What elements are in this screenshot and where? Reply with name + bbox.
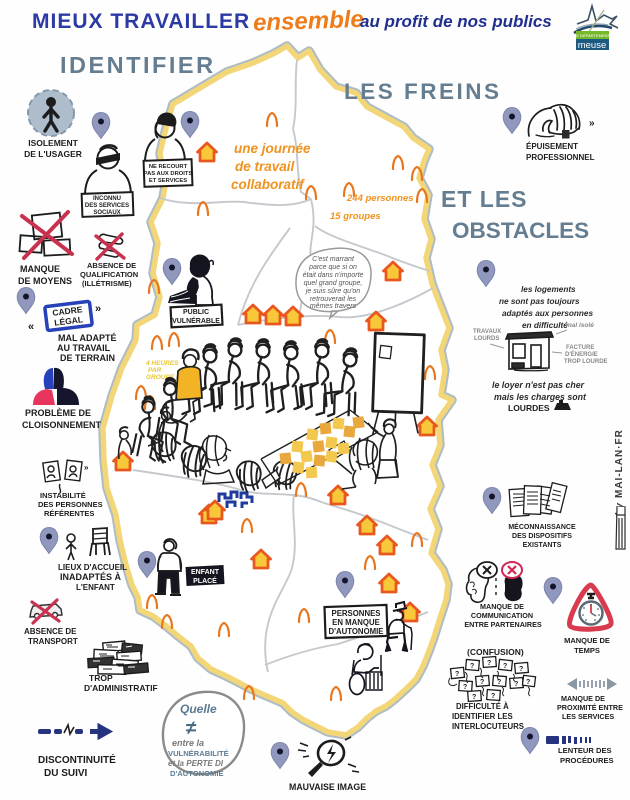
svg-text:CLOISONNEMENT: CLOISONNEMENT bbox=[22, 420, 102, 430]
svg-text:le loyer n'est pas cher: le loyer n'est pas cher bbox=[492, 380, 585, 390]
svg-text:(CONFUSION): (CONFUSION) bbox=[467, 647, 524, 657]
svg-text:et la PERTE DI: et la PERTE DI bbox=[168, 759, 224, 768]
svg-text:FACTURE: FACTURE bbox=[566, 345, 594, 351]
svg-text:«: « bbox=[28, 321, 34, 333]
svg-text:LIEUX D'ACCUEIL: LIEUX D'ACCUEIL bbox=[58, 563, 127, 572]
svg-text:collaboratif: collaboratif bbox=[231, 177, 305, 192]
svg-text:DE L'USAGER: DE L'USAGER bbox=[24, 149, 82, 159]
svg-text:MAL ADAPTÉ: MAL ADAPTÉ bbox=[58, 333, 117, 343]
svg-text:entre la: entre la bbox=[172, 738, 204, 748]
svg-text:MAUVAISE IMAGE: MAUVAISE IMAGE bbox=[289, 782, 366, 792]
svg-text:meuse: meuse bbox=[578, 40, 607, 51]
svg-text:D'AUTONOMIE: D'AUTONOMIE bbox=[329, 627, 384, 636]
svg-text:PAR: PAR bbox=[148, 367, 162, 374]
svg-text:LES FREINS: LES FREINS bbox=[344, 79, 502, 104]
svg-text:MANQUE: MANQUE bbox=[20, 264, 60, 274]
svg-text:NE RECOURT: NE RECOURT bbox=[149, 164, 188, 170]
svg-text:MANQUE DE: MANQUE DE bbox=[561, 694, 605, 703]
svg-text:INCONNU: INCONNU bbox=[93, 196, 121, 202]
svg-text:DE TERRAIN: DE TERRAIN bbox=[60, 353, 115, 363]
svg-text:MANQUE DE: MANQUE DE bbox=[564, 636, 610, 645]
svg-text:D'ÉNERGIE: D'ÉNERGIE bbox=[565, 350, 598, 358]
svg-text:IDENTIFIER: IDENTIFIER bbox=[60, 52, 216, 78]
svg-text:TROP LOURDE: TROP LOURDE bbox=[564, 359, 608, 365]
svg-text:244 personnes: 244 personnes bbox=[346, 193, 414, 204]
svg-text:D'ADMINISTRATIF: D'ADMINISTRATIF bbox=[84, 683, 158, 693]
svg-text:MÉCONNAISSANCE: MÉCONNAISSANCE bbox=[508, 522, 576, 531]
svg-text:DE MOYENS: DE MOYENS bbox=[18, 276, 72, 286]
svg-text:?: ? bbox=[519, 666, 523, 673]
svg-text:LENTEUR DES: LENTEUR DES bbox=[558, 746, 612, 755]
svg-text:MIEUX TRAVAILLER: MIEUX TRAVAILLER bbox=[32, 10, 250, 33]
svg-text:L'ENFANT: L'ENFANT bbox=[76, 583, 115, 592]
svg-text:LOURDES: LOURDES bbox=[508, 403, 550, 413]
svg-text:15 groupes: 15 groupes bbox=[330, 211, 381, 222]
svg-text:?: ? bbox=[487, 660, 491, 667]
svg-text:OBSTACLES: OBSTACLES bbox=[452, 218, 589, 243]
svg-text:?: ? bbox=[503, 663, 507, 670]
svg-text:ÉPUISEMENT: ÉPUISEMENT bbox=[526, 142, 578, 151]
svg-text:ISOLEMENT: ISOLEMENT bbox=[28, 138, 78, 148]
svg-text:en difficulté: en difficulté bbox=[522, 321, 568, 330]
svg-text:TROP: TROP bbox=[89, 673, 113, 683]
svg-text:PROFESSIONNEL: PROFESSIONNEL bbox=[526, 153, 595, 162]
svg-text:?: ? bbox=[470, 663, 474, 670]
svg-text:4 HEURES: 4 HEURES bbox=[145, 360, 179, 367]
svg-text:TRANSPORT: TRANSPORT bbox=[28, 637, 78, 646]
svg-text:?: ? bbox=[497, 679, 501, 686]
svg-text:ENFANT: ENFANT bbox=[191, 569, 220, 576]
svg-text:MANQUE DE: MANQUE DE bbox=[480, 602, 524, 611]
svg-text:?: ? bbox=[514, 681, 518, 688]
svg-text:ensemble: ensemble bbox=[253, 6, 365, 37]
svg-text:ENTRE PARTENAIRES: ENTRE PARTENAIRES bbox=[464, 620, 542, 629]
svg-text:PROXIMITÉ ENTRE: PROXIMITÉ ENTRE bbox=[557, 703, 623, 712]
svg-text:DES PERSONNES: DES PERSONNES bbox=[38, 500, 103, 509]
svg-text:PROCÉDURES: PROCÉDURES bbox=[560, 756, 614, 765]
svg-text:INSTABILITÉ: INSTABILITÉ bbox=[40, 491, 86, 500]
svg-text:?: ? bbox=[463, 684, 467, 691]
svg-text:≠: ≠ bbox=[186, 718, 197, 739]
svg-text:PERSONNES: PERSONNES bbox=[332, 609, 381, 618]
svg-text:était dans n'importe: était dans n'importe bbox=[303, 272, 364, 279]
svg-text:MAI-LAN·FR: MAI-LAN·FR bbox=[614, 429, 625, 498]
svg-text:C'est marrant: C'est marrant bbox=[312, 256, 355, 263]
svg-text:SOCIAUX: SOCIAUX bbox=[93, 210, 120, 216]
svg-text:au profit de nos publics: au profit de nos publics bbox=[360, 12, 552, 31]
svg-text:ABSENCE DE: ABSENCE DE bbox=[24, 627, 77, 636]
svg-text:LOURDS: LOURDS bbox=[474, 336, 499, 342]
svg-text:D'AUTONOMIE: D'AUTONOMIE bbox=[170, 769, 224, 778]
svg-text:quel grand groupe,: quel grand groupe, bbox=[304, 280, 363, 287]
svg-text:DES SERVICES: DES SERVICES bbox=[85, 203, 129, 209]
svg-text:DU SUIVI: DU SUIVI bbox=[44, 768, 88, 779]
svg-text:LE DÉPARTEMENT: LE DÉPARTEMENT bbox=[574, 33, 610, 38]
svg-text:ET LES: ET LES bbox=[441, 186, 528, 212]
svg-text:LES SERVICES: LES SERVICES bbox=[562, 712, 614, 721]
svg-text:»: » bbox=[84, 463, 89, 472]
svg-text:?: ? bbox=[472, 694, 476, 701]
svg-text:ET SERVICES: ET SERVICES bbox=[149, 178, 187, 184]
svg-text:DIFFICULTÉ À: DIFFICULTÉ À bbox=[456, 702, 509, 711]
svg-text:QUALIFICATION: QUALIFICATION bbox=[80, 270, 138, 279]
svg-text:PROBLÈME DE: PROBLÈME DE bbox=[25, 408, 91, 418]
svg-text:?: ? bbox=[455, 671, 459, 678]
svg-text:EN MANQUE: EN MANQUE bbox=[332, 618, 380, 627]
svg-text:PAS AUX DROITS: PAS AUX DROITS bbox=[144, 171, 193, 177]
svg-text:mal isolé: mal isolé bbox=[566, 322, 594, 329]
svg-text:IDENTIFIER LES: IDENTIFIER LES bbox=[452, 712, 513, 721]
svg-text:?: ? bbox=[480, 679, 484, 686]
svg-text:»: » bbox=[589, 118, 595, 129]
svg-text:je suis sûre qu'on: je suis sûre qu'on bbox=[305, 288, 360, 295]
svg-text:TEMPS: TEMPS bbox=[574, 646, 600, 655]
svg-text:VULNÉRABLE: VULNÉRABLE bbox=[172, 316, 220, 325]
svg-text:TRAVAUX: TRAVAUX bbox=[473, 329, 501, 335]
svg-text:une journée: une journée bbox=[234, 141, 311, 156]
svg-text:INADAPTÉS À: INADAPTÉS À bbox=[60, 572, 122, 582]
svg-text:de travail: de travail bbox=[235, 159, 295, 174]
svg-text:adaptés aux personnes: adaptés aux personnes bbox=[502, 309, 593, 318]
svg-text:»: » bbox=[95, 303, 101, 315]
svg-text:Quelle: Quelle bbox=[180, 702, 217, 716]
svg-text:VULNÉRABILITÉ: VULNÉRABILITÉ bbox=[168, 749, 229, 758]
svg-text:les logements: les logements bbox=[521, 285, 576, 294]
svg-text:DISCONTINUITÉ: DISCONTINUITÉ bbox=[38, 753, 116, 766]
svg-text:AU TRAVAIL: AU TRAVAIL bbox=[57, 343, 111, 353]
svg-text:mais les charges sont: mais les charges sont bbox=[494, 392, 587, 402]
svg-text:COMMUNICATION: COMMUNICATION bbox=[471, 611, 533, 620]
svg-text:?: ? bbox=[491, 693, 495, 700]
svg-text:PUBLIC: PUBLIC bbox=[183, 309, 209, 316]
svg-text:ABSENCE DE: ABSENCE DE bbox=[87, 261, 136, 270]
svg-text:(ILLÉTRISME): (ILLÉTRISME) bbox=[82, 279, 132, 288]
svg-text:retrouverait les: retrouverait les bbox=[310, 296, 357, 303]
svg-text:parce que si on: parce que si on bbox=[308, 264, 357, 271]
svg-text:INTERLOCUTEURS: INTERLOCUTEURS bbox=[452, 722, 524, 731]
svg-text:EXISTANTS: EXISTANTS bbox=[523, 542, 562, 549]
svg-text:RÉFÉRENTES: RÉFÉRENTES bbox=[44, 509, 94, 518]
svg-text:mêmes travers: mêmes travers bbox=[310, 303, 357, 310]
svg-text:?: ? bbox=[526, 679, 530, 686]
svg-text:DES DISPOSITIFS: DES DISPOSITIFS bbox=[512, 533, 572, 540]
svg-text:ne sont pas toujours: ne sont pas toujours bbox=[499, 297, 580, 306]
svg-text:PLACÉ: PLACÉ bbox=[193, 576, 217, 585]
